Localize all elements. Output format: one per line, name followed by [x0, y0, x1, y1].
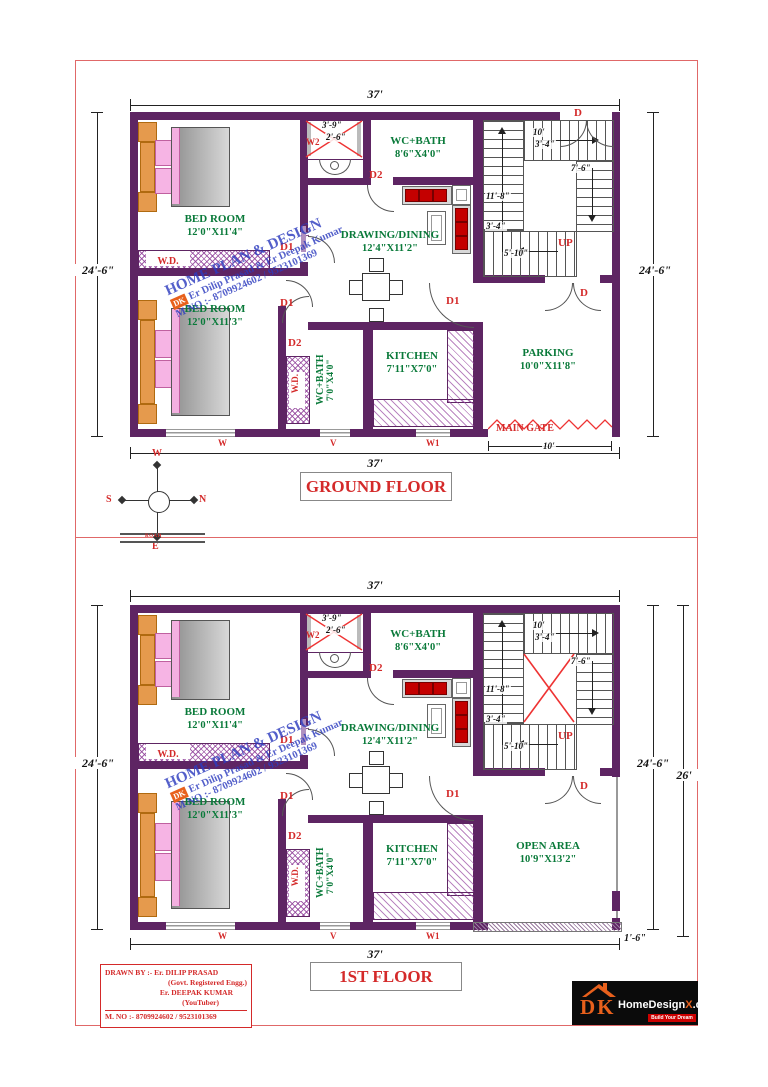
dimension-tick [647, 436, 659, 437]
dimension-tick [91, 112, 103, 113]
wall [130, 268, 308, 276]
stair-flight [483, 613, 525, 725]
nightstand [138, 685, 157, 705]
window-label: V [330, 439, 337, 448]
open-area-parapet [473, 922, 622, 932]
door-arc [367, 678, 394, 705]
compass-point-icon [153, 461, 161, 469]
brand-logo: DK HomeDesignX.com Build Your Dream [572, 981, 698, 1025]
door-label-d1: D1 [280, 791, 293, 802]
dining-table [362, 273, 390, 301]
door-label-d1: D1 [280, 735, 293, 746]
floor-plan-sheet: { "colors":{"wall":"#5e2563","label_gree… [0, 0, 768, 1087]
room-label-kitchen: KITCHEN7'11"X7'0" [362, 349, 462, 377]
dimension-line [130, 105, 620, 106]
sofa-cushion [455, 222, 468, 236]
pillow [155, 330, 172, 358]
room-label-open-area: OPEN AREA10'9"X13'2" [498, 839, 598, 867]
dimension-tick [91, 605, 103, 606]
wall [305, 671, 363, 678]
credits-line: (Govt. Registered Engg.) [105, 978, 247, 988]
wall [393, 177, 473, 185]
side-table [452, 678, 471, 698]
door-label-d1: D1 [280, 242, 293, 253]
sofa-cushion [455, 729, 468, 743]
window [416, 429, 450, 437]
wall [130, 112, 560, 120]
window [416, 922, 450, 930]
logo-tagline: Build Your Dream [648, 1014, 696, 1022]
floor-title: GROUND FLOOR [306, 477, 446, 496]
pillow [155, 853, 172, 881]
dim-bottom: 37' [135, 948, 615, 960]
wd-label: W.D. [291, 867, 300, 886]
dim-top: 37' [135, 579, 615, 591]
up-label: UP [558, 238, 573, 249]
shaft-dim-h: 2'-6" [325, 133, 347, 142]
basin-drain [330, 161, 339, 170]
door-label-d: D [574, 108, 582, 119]
nightstand [138, 192, 157, 212]
sofa-cushion [405, 682, 419, 695]
pillow [155, 360, 172, 388]
window-label: W1 [426, 439, 440, 448]
wall [350, 429, 416, 437]
dim-right: 24'-6" [625, 757, 681, 769]
wall [278, 306, 286, 429]
sofa-cushion [455, 208, 468, 222]
room-label-bedroom2: BED ROOM12'0"X11'3" [160, 795, 270, 823]
room-label-bedroom2: BED ROOM12'0"X11'3" [160, 302, 270, 330]
main-gate-label: MAIN GATE [496, 424, 554, 434]
dimension-line [130, 453, 620, 454]
arrow-head [498, 127, 506, 134]
chair [389, 773, 403, 788]
wd-label: W.D. [291, 374, 300, 393]
window-label: W [218, 439, 227, 448]
bed-sheet-fold [172, 621, 180, 697]
wall [305, 178, 363, 185]
dim-left: 24'-6" [75, 757, 121, 769]
tv-label: TV [306, 723, 311, 730]
wall [130, 761, 308, 769]
wall [473, 605, 483, 776]
shaft-label: W2 [306, 631, 320, 640]
stair-dim: 5'-10" [503, 742, 529, 751]
floor-title: 1ST FLOOR [339, 967, 433, 986]
stair-dim: 3'-4" [485, 222, 507, 231]
stair-dim: 3'-4" [485, 715, 507, 724]
door-label-d1: D1 [446, 296, 459, 307]
credits-line: M. NO :- 8709924602 / 9523101369 [105, 1010, 247, 1022]
room-label-drawing: DRAWING/DINING12'4"X11'2" [325, 228, 455, 256]
dining-set [349, 751, 401, 813]
dimension-tick [91, 436, 103, 437]
dimension-line [130, 944, 620, 945]
sofa-cushion [455, 236, 468, 250]
dim-right-2: 26' [667, 769, 701, 781]
dim-right: 24'-6" [627, 264, 683, 276]
sofa-cushion [433, 189, 447, 202]
sofa-cushion [433, 682, 447, 695]
pillow [155, 633, 172, 659]
nightstand [138, 897, 157, 917]
wall [235, 922, 320, 930]
ground-floor-plan: 3'-9" 2'-6" W2 10' 3'-4" 7'-6" 11'-8" 3'… [130, 112, 620, 437]
door-arc [367, 185, 394, 212]
shaft-dim-h: 2'-6" [325, 626, 347, 635]
stair-dim: 7'-6" [570, 657, 592, 666]
room-label-parking: PARKING10'0"X11'8" [498, 346, 598, 374]
wall [600, 768, 612, 776]
nightstand [138, 122, 157, 142]
credits-line: DRAWN BY :- Er. DILIP PRASAD [105, 968, 247, 978]
table-top [456, 682, 467, 694]
chair [349, 773, 363, 788]
credits-line: Er. DEEPAK KUMAR [105, 988, 247, 998]
chair [349, 280, 363, 295]
first-floor-section: 37' 37' 1'-6" 24'-6" 24'-6" 26' [75, 538, 697, 1025]
compass-west: W [152, 449, 162, 459]
wall [130, 922, 166, 930]
wall [350, 922, 416, 930]
window [320, 429, 350, 437]
sofa-cushion [419, 682, 433, 695]
wardrobe-label-box: W.D. [146, 744, 190, 759]
wd-label: W.D. [157, 256, 178, 267]
window [166, 922, 235, 930]
stair-dim: 11'-8" [485, 685, 511, 694]
compass-circle [148, 491, 170, 513]
door-label-d: D [580, 781, 588, 792]
dim-top: 37' [135, 88, 615, 100]
side-table [452, 185, 471, 205]
bed-sheet-fold [172, 128, 180, 204]
door-label-d2: D2 [369, 663, 382, 674]
dining-table [362, 766, 390, 794]
dim-bottom: 37' [135, 457, 615, 469]
ground-floor-section: 37' 37' 24'-6" 24'-6" [75, 60, 697, 538]
room-label-wcbath-top: WC+BATH8'6"X4'0" [363, 627, 473, 655]
stair-dim: 3'-4" [534, 633, 556, 642]
wall [278, 799, 286, 922]
door-label-d2: D2 [288, 831, 301, 842]
dimension-tick [91, 929, 103, 930]
dimension-tick [619, 99, 620, 111]
arrow [592, 168, 593, 216]
dim-offset: 1'-6" [605, 934, 665, 944]
stair-dim: 10' [532, 128, 546, 137]
room-label-wcbath-bottom: WC+BATH7'0"X4'0" [315, 833, 359, 913]
headboard [140, 635, 155, 685]
up-label: UP [558, 731, 573, 742]
kitchen-platform [373, 892, 475, 920]
compass-point-icon [118, 496, 126, 504]
window-label: W1 [426, 932, 440, 941]
compass-south: S [106, 495, 112, 505]
dimension-line [130, 596, 620, 597]
floor-title-box: 1ST FLOOR [310, 962, 462, 991]
dimension-tick [130, 938, 131, 950]
logo-name: HomeDesignX.com [618, 999, 698, 1011]
dimension-tick [647, 605, 659, 606]
dimension-tick [488, 441, 489, 451]
pillow [155, 823, 172, 851]
gate-dim: 10' [542, 442, 556, 451]
wall [612, 891, 620, 911]
shaft-dim-w: 3'-9" [321, 121, 343, 130]
room-label-wcbath-top: WC+BATH8'6"X4'0" [363, 134, 473, 162]
dimension-tick [130, 99, 131, 111]
bed [138, 615, 230, 703]
door-arc [545, 776, 573, 804]
kitchen-platform [373, 399, 475, 427]
stair-dim: 3'-4" [534, 140, 556, 149]
sofa-cushion [405, 189, 419, 202]
sofa-cushion [455, 701, 468, 715]
dimension-tick [647, 112, 659, 113]
door-label-d1: D1 [446, 789, 459, 800]
compass-point-icon [190, 496, 198, 504]
wardrobe-label-box: W.D. [146, 251, 190, 266]
bed [138, 122, 230, 210]
pillow [155, 661, 172, 687]
nightstand [138, 615, 157, 635]
pillow [155, 140, 172, 166]
door-label-d2: D2 [288, 338, 301, 349]
dim-left: 24'-6" [75, 264, 121, 276]
door-label-d: D [580, 288, 588, 299]
stair-landing [523, 160, 577, 232]
dimension-tick [619, 590, 620, 602]
arrow-head [592, 629, 599, 637]
logo-dk: DK [580, 995, 616, 1020]
compass-north: N [199, 495, 206, 505]
room-label-kitchen: KITCHEN7'11"X7'0" [362, 842, 462, 870]
tv-label: TV [306, 230, 311, 237]
dimension-tick [619, 447, 620, 459]
door-label-d1: D1 [280, 298, 293, 309]
nightstand [138, 404, 157, 424]
stair-flight [483, 120, 525, 232]
sofa-cushion [455, 715, 468, 729]
compass-arm [123, 500, 149, 501]
first-floor-plan: 3'-9" 2'-6" W2 10' 3'-4" 7'-6" 11'-8" 3'… [130, 605, 620, 930]
pillow [155, 168, 172, 194]
compass: W S N E [115, 458, 201, 544]
floor-title-box: GROUND FLOOR [300, 472, 452, 501]
room-label-bedroom1: BED ROOM12'0"X11'4" [160, 705, 270, 733]
stairwell-cross-icon [523, 653, 575, 723]
arrow-head [498, 620, 506, 627]
room-label-drawing: DRAWING/DINING12'4"X11'2" [325, 721, 455, 749]
wall [130, 429, 166, 437]
door-arc [545, 283, 573, 311]
stair-dim: 7'-6" [570, 164, 592, 173]
nightstand [138, 793, 157, 813]
shaft-dim-w: 3'-9" [321, 614, 343, 623]
wall [450, 429, 488, 437]
compass-arm [157, 466, 158, 492]
nightstand [138, 300, 157, 320]
wd-label: W.D. [157, 749, 178, 760]
headboard [140, 813, 155, 897]
wall [473, 112, 483, 283]
headboard [140, 142, 155, 192]
dimension-tick [677, 936, 689, 937]
arrow [592, 661, 593, 709]
dining-set [349, 258, 401, 320]
table-top [456, 189, 467, 201]
stair-dim: 5'-10" [503, 249, 529, 258]
room-label-bedroom1: BED ROOM12'0"X11'4" [160, 212, 270, 240]
logo-chimney-icon [603, 983, 607, 991]
wall [130, 605, 620, 613]
credits-box: DRAWN BY :- Er. DILIP PRASAD (Govt. Regi… [100, 964, 252, 1028]
sofa-cushion [419, 189, 433, 202]
headboard [140, 320, 155, 404]
dimension-tick [677, 605, 689, 606]
stair-dim: 10' [532, 621, 546, 630]
window-label: W [218, 932, 227, 941]
arrow-head [588, 708, 596, 715]
sofa [402, 186, 452, 205]
dimension-tick [130, 590, 131, 602]
credits-line: (YouTuber) [105, 998, 247, 1008]
stair-dim: 11'-8" [485, 192, 511, 201]
dimension-tick [611, 441, 612, 451]
chair [369, 801, 384, 815]
shaft-label: W2 [306, 138, 320, 147]
basin-drain [330, 654, 339, 663]
wall [600, 275, 612, 283]
wall [393, 670, 473, 678]
chair [369, 751, 384, 765]
window-label: V [330, 932, 337, 941]
arrow-head [588, 215, 596, 222]
door-label-d2: D2 [369, 170, 382, 181]
road-line [120, 533, 205, 535]
chair [369, 258, 384, 272]
dimension-tick [647, 929, 659, 930]
sofa [402, 679, 452, 698]
room-label-wcbath-bottom: WC+BATH7'0"X4'0" [315, 340, 359, 420]
chair [369, 308, 384, 322]
window [166, 429, 235, 437]
wall [235, 429, 320, 437]
chair [389, 280, 403, 295]
window [320, 922, 350, 930]
